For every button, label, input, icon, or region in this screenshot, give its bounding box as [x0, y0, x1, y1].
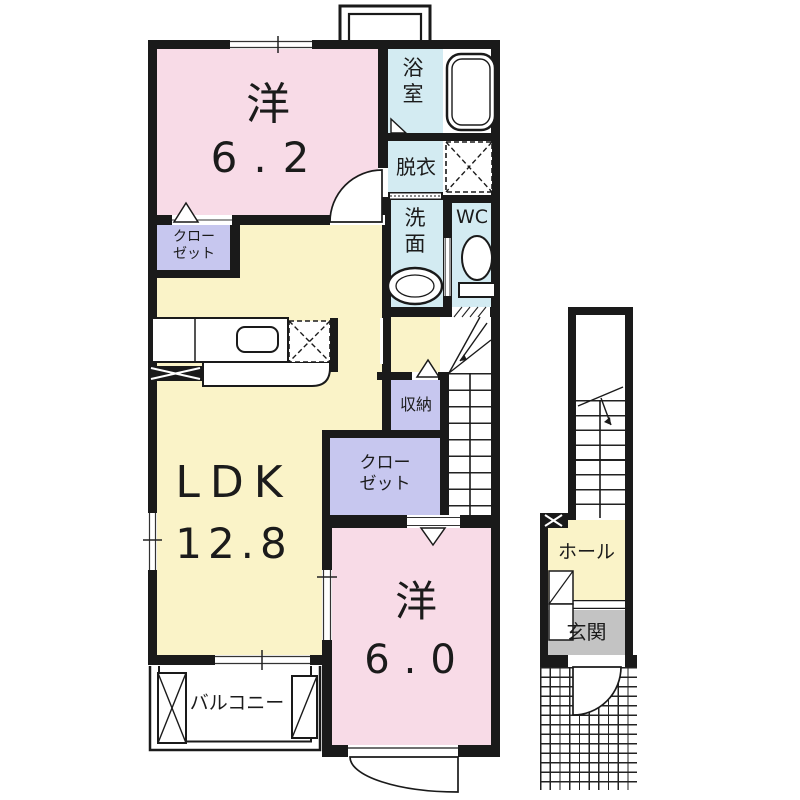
- label-hall: ホール: [548, 541, 625, 564]
- label-western-6-0-area: 6.0: [332, 636, 502, 685]
- label-storage: 収納: [391, 395, 441, 415]
- entrance-step: [572, 600, 625, 609]
- label-western-6-0: 洋: [366, 576, 466, 627]
- entrance-porch-tiles: [540, 667, 637, 790]
- stair-vestibule: [391, 317, 440, 372]
- door-western-6-0: [348, 745, 458, 792]
- label-dressing: 脱衣: [389, 155, 443, 179]
- label-closet-upper: クロー ゼット: [158, 229, 230, 263]
- label-wc: WC: [452, 206, 492, 229]
- label-entrance: 玄関: [548, 620, 625, 644]
- label-western-6-2: 洋: [208, 78, 328, 132]
- washing-machine-space: [446, 142, 492, 192]
- label-ldk-area: 12.8: [134, 518, 334, 569]
- room-ldk: [157, 225, 322, 655]
- label-closet-lower: クロー ゼット: [334, 453, 436, 494]
- bath-bay-window: [340, 6, 430, 44]
- label-bathroom: 浴室: [400, 56, 426, 107]
- label-balcony: バルコニー: [172, 692, 302, 715]
- stairs-2f-treads: [449, 373, 491, 515]
- label-washroom: 洗面: [402, 206, 428, 257]
- stairs-1f-treads: [576, 400, 625, 518]
- label-western-6-2-area: 6.2: [168, 132, 368, 183]
- ldk-corridor: [322, 225, 383, 430]
- bathtub: [447, 54, 495, 130]
- label-ldk: LDK: [134, 456, 334, 510]
- floor-plan-canvas: 洋 6.2 浴室 脱衣 洗面 WC クロー ゼット 収納 クロー ゼット LDK…: [0, 0, 800, 800]
